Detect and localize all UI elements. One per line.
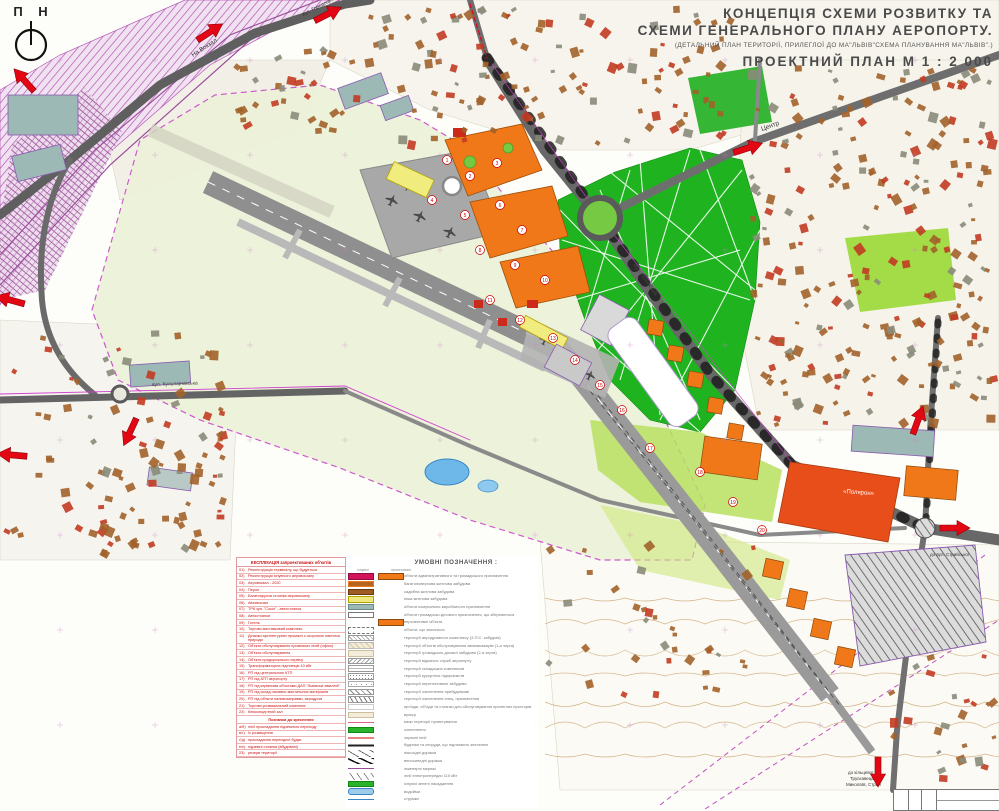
house bbox=[213, 475, 217, 478]
legend-swatch bbox=[348, 635, 374, 642]
house bbox=[512, 84, 518, 89]
house bbox=[178, 463, 187, 471]
legend-swatch bbox=[348, 642, 374, 649]
explication-row: 13)Об'єкти обслуговування bbox=[237, 650, 345, 657]
explication-row: 03)Аеровокзал - 2020 bbox=[237, 580, 345, 587]
legend-swatch bbox=[348, 788, 374, 795]
house bbox=[683, 112, 688, 117]
legend-column-headers: існуючі проектовані bbox=[350, 568, 536, 572]
explication-row-number: 15) bbox=[239, 664, 248, 668]
explication-row: 23)резерв території bbox=[237, 750, 345, 757]
explication-row-text: Автостоянки bbox=[248, 614, 270, 618]
legend-label: об'єкти адміністративного та громадськог… bbox=[404, 574, 508, 578]
explication-row-text: Автовокзал bbox=[248, 601, 268, 605]
explication-row: в/г)їх розміщення bbox=[237, 731, 345, 738]
house bbox=[46, 458, 54, 463]
legend-swatch bbox=[348, 581, 374, 588]
house bbox=[137, 397, 146, 406]
site-number-text: 5 bbox=[464, 213, 467, 219]
map-label: до вул. Стрийської bbox=[930, 551, 970, 557]
legend-swatch bbox=[348, 750, 374, 757]
house bbox=[654, 75, 661, 81]
explication-row: 22)Кіноконцертний зал bbox=[237, 709, 345, 716]
house bbox=[784, 167, 790, 173]
house bbox=[59, 355, 64, 360]
legend-row: струмки bbox=[348, 796, 536, 803]
house bbox=[981, 396, 987, 401]
house bbox=[431, 136, 438, 141]
legend-swatch bbox=[348, 604, 374, 611]
house bbox=[751, 545, 756, 550]
legend-row: об'єкти адміністративного та громадськог… bbox=[348, 573, 536, 580]
house bbox=[437, 112, 443, 118]
legend-row: озеленення bbox=[348, 727, 536, 734]
legend-label: інша житлова забудова bbox=[404, 597, 447, 601]
legend-swatch bbox=[348, 619, 374, 626]
house bbox=[758, 283, 763, 287]
legend-label: перспективні об'єкти bbox=[404, 620, 442, 624]
legend-swatch bbox=[348, 719, 374, 726]
house bbox=[651, 111, 660, 121]
explication-row-text: РП під склад паливно-мастильних матеріал… bbox=[248, 690, 328, 694]
house bbox=[709, 101, 715, 108]
house bbox=[483, 61, 489, 67]
legend-panel: УМОВНІ ПОЗНАЧЕННЯ : існуючі проектовані … bbox=[346, 556, 538, 808]
site-number-text: 8 bbox=[479, 248, 482, 254]
house bbox=[963, 138, 969, 143]
house bbox=[653, 691, 660, 698]
site-number-text: 17 bbox=[647, 446, 653, 452]
site-number-text: 13 bbox=[550, 336, 556, 342]
title-block: КОНЦЕПЦІЯ СХЕМИ РОЗВИТКУ ТА СХЕМИ ГЕНЕРА… bbox=[603, 5, 993, 70]
legend-row: пішохідні доріжки bbox=[348, 750, 536, 757]
explication-row-number: е/є) bbox=[239, 745, 248, 749]
legend-swatch bbox=[348, 796, 374, 803]
house bbox=[240, 117, 246, 122]
explication-row-number: 13) bbox=[239, 651, 248, 655]
explication-row-number: 01) bbox=[239, 568, 248, 572]
house bbox=[373, 42, 379, 48]
house bbox=[563, 599, 572, 607]
explication-title: ЕКСПЛІКАЦІЯ запроектованих об'єктів bbox=[237, 558, 345, 567]
site-number-text: 6 bbox=[499, 203, 502, 209]
explication-row-text: Трансформаторна підстанція 10 кВт bbox=[248, 664, 312, 668]
house bbox=[200, 355, 204, 359]
legend-swatch bbox=[348, 758, 374, 765]
legend-label: проїзди, об'їзди та стоянки для обслугов… bbox=[404, 705, 531, 709]
legend-label: території аеродромного комплексу (З.П.С.… bbox=[404, 636, 501, 640]
legend-label: інженерні мережі bbox=[404, 767, 436, 771]
house bbox=[217, 473, 222, 478]
explication-row-text: Ділянки архітектурних промзон з охороною… bbox=[248, 634, 343, 642]
explication-row-number: 04) bbox=[239, 588, 248, 592]
legend-label: території об'єктів обслуговування авіапа… bbox=[404, 644, 514, 648]
explication-row-text: Об'єкти обслуговування приземних ліній (… bbox=[248, 644, 333, 648]
legend-label: об'єкти комунально-виробничого призначен… bbox=[404, 605, 490, 609]
house bbox=[957, 172, 964, 178]
legend-row: території аеродромного комплексу (З.П.С.… bbox=[348, 635, 536, 642]
explication-row: ґ/д)прокладання перехідної будки bbox=[237, 737, 345, 744]
legend-swatch bbox=[348, 765, 374, 772]
title-line-1: КОНЦЕПЦІЯ СХЕМИ РОЗВИТКУ ТА bbox=[603, 5, 993, 22]
legend-label: велосипедні доріжки bbox=[404, 759, 442, 763]
legend-row: вулиці bbox=[348, 712, 536, 719]
explication-row-text: Об'єкти обслуговування bbox=[248, 651, 290, 655]
legend-row: перспективні об'єкти bbox=[348, 619, 536, 626]
explication-row: е/є)підземні стоянки (вбудовані) bbox=[237, 744, 345, 751]
house bbox=[832, 105, 837, 110]
house bbox=[673, 103, 678, 108]
house bbox=[778, 278, 787, 285]
stamp-cell bbox=[894, 790, 909, 810]
legend-row: території громадсько-ділової забудови (2… bbox=[348, 650, 536, 657]
legend-row: об'єкти комунально-виробничого призначен… bbox=[348, 604, 536, 611]
legend-swatch bbox=[348, 650, 374, 657]
explication-row-text: Кіноконцертний зал bbox=[248, 710, 283, 714]
explication-row: 04)Перон bbox=[237, 587, 345, 594]
house bbox=[841, 111, 850, 117]
legend-label: будинки та споруди, що підлягають знесен… bbox=[404, 743, 488, 747]
house bbox=[279, 85, 285, 92]
legend-swatch bbox=[348, 727, 374, 734]
house bbox=[424, 59, 433, 69]
house bbox=[556, 45, 562, 49]
stamp-cell bbox=[937, 790, 999, 810]
legend-row: території перспективної забудови bbox=[348, 681, 536, 688]
legend-row: існуючі зелені насадження bbox=[348, 781, 536, 788]
explication-row-number: 16) bbox=[239, 671, 248, 675]
house bbox=[579, 14, 586, 21]
house bbox=[60, 488, 70, 498]
house bbox=[952, 694, 957, 700]
legend-label: об'єкти громадсько-ділового призначення,… bbox=[404, 613, 514, 617]
house bbox=[35, 412, 41, 416]
house bbox=[982, 327, 989, 334]
house bbox=[798, 242, 803, 246]
house bbox=[795, 266, 804, 275]
site-number-text: 18 bbox=[697, 470, 703, 476]
site-number-text: 10 bbox=[542, 278, 548, 284]
house bbox=[832, 150, 838, 156]
house bbox=[972, 333, 978, 340]
legend-label: території складських комплексів bbox=[404, 667, 464, 671]
explication-row-number: 08) bbox=[239, 614, 248, 618]
house bbox=[903, 717, 913, 725]
legend-swatch bbox=[348, 596, 374, 603]
legend-title: УМОВНІ ПОЗНАЧЕННЯ : bbox=[376, 559, 536, 566]
explication-rows: 01)Реконструкція терміналу, що будується… bbox=[237, 567, 345, 757]
legend-row: території відомчих служб аеропорту bbox=[348, 658, 536, 665]
house bbox=[742, 664, 747, 668]
house bbox=[642, 78, 647, 84]
legend-row: інша житлова забудова bbox=[348, 596, 536, 603]
explication-row: 01)Реконструкція терміналу, що будується bbox=[237, 567, 345, 574]
house bbox=[748, 69, 758, 80]
legend-swatch bbox=[348, 573, 374, 580]
legend-row: території озеленення спец. призначення bbox=[348, 696, 536, 703]
legend-row: багатоповерхова житлова забудова bbox=[348, 581, 536, 588]
house bbox=[717, 111, 723, 117]
legend-col-existing: існуючі bbox=[350, 568, 376, 572]
house bbox=[703, 685, 708, 690]
explication-row-text: лінії прокладання підземного переходу bbox=[248, 725, 317, 729]
explication-row-number: 07) bbox=[239, 607, 248, 611]
site-number-text: 9 bbox=[514, 263, 517, 269]
house bbox=[966, 162, 972, 169]
explication-row-number: 23) bbox=[239, 751, 248, 755]
explication-row: 18)РП під керівними об'єктами ДАП "Львів… bbox=[237, 683, 345, 690]
explication-row-number: 17) bbox=[239, 677, 248, 681]
explication-row-text: їх розміщення bbox=[248, 731, 273, 735]
explication-row-text: підземні стоянки (вбудовані) bbox=[248, 745, 298, 749]
house bbox=[389, 34, 394, 40]
legend-swatch bbox=[348, 665, 374, 672]
house bbox=[36, 473, 43, 478]
explication-row-text: прокладання перехідної будки bbox=[248, 738, 301, 742]
legend-label: багатоповерхова житлова забудова bbox=[404, 582, 470, 586]
legend-swatch bbox=[348, 627, 374, 634]
site-number-text: 16 bbox=[619, 408, 625, 414]
house bbox=[975, 756, 984, 766]
legend-label: садибна житлова забудова bbox=[404, 590, 454, 594]
house bbox=[939, 775, 948, 782]
masterplan-page: { "title_block": { "line1": "КОНЦЕПЦІЯ С… bbox=[0, 0, 999, 809]
house bbox=[950, 160, 958, 168]
explication-row-number: а/б) bbox=[239, 725, 248, 729]
house bbox=[900, 77, 906, 83]
house bbox=[645, 608, 654, 618]
site-number-text: 15 bbox=[597, 383, 603, 389]
house bbox=[174, 332, 181, 339]
house bbox=[446, 92, 455, 98]
explication-row: 07)ТРК зуп. "Сокіл" - автостоянка bbox=[237, 607, 345, 614]
house bbox=[859, 167, 866, 173]
legend-row: червоні лінії bbox=[348, 735, 536, 742]
house bbox=[398, 135, 407, 144]
explication-row: 14)Об'єкти придорожнього сервісу bbox=[237, 657, 345, 664]
legend-swatch-projected bbox=[378, 619, 404, 626]
explication-subtitle: Позначки до креслення bbox=[237, 716, 345, 724]
house bbox=[98, 505, 104, 509]
legend-swatch bbox=[348, 658, 374, 665]
explication-row: 20)РП під об'єкти паливозаправки, аеродр… bbox=[237, 696, 345, 703]
legend-swatch bbox=[348, 689, 374, 696]
house bbox=[750, 216, 756, 222]
house bbox=[971, 218, 975, 221]
site-number-text: 7 bbox=[521, 228, 524, 234]
explication-row-number: 03) bbox=[239, 581, 248, 585]
explication-row: 19)РП під склад паливно-мастильних матер… bbox=[237, 690, 345, 697]
explication-row: 17)РП під АТП аеропорту bbox=[237, 677, 345, 684]
legend-swatch bbox=[348, 704, 374, 711]
legend-row: території курортних підприємств bbox=[348, 673, 536, 680]
house bbox=[950, 314, 958, 321]
legend-rows: об'єкти адміністративного та громадськог… bbox=[348, 573, 536, 802]
explication-row-number: 12) bbox=[239, 644, 248, 648]
house bbox=[783, 391, 788, 396]
compass-label: П Н bbox=[8, 4, 54, 19]
house bbox=[364, 58, 374, 68]
house bbox=[960, 757, 966, 763]
house bbox=[975, 234, 982, 242]
legend-label: пішохідні доріжки bbox=[404, 751, 436, 755]
house bbox=[967, 340, 973, 347]
house bbox=[666, 658, 671, 664]
explication-row: 08)Автостоянки bbox=[237, 613, 345, 620]
house bbox=[217, 510, 221, 513]
site-number-text: 2 bbox=[469, 174, 472, 180]
house bbox=[823, 421, 829, 425]
house bbox=[936, 238, 941, 243]
explication-row: а/б)лінії прокладання підземного переход… bbox=[237, 724, 345, 731]
legend-swatch bbox=[348, 681, 374, 688]
explication-row-text: Реконструкція терміналу, що будується bbox=[248, 568, 317, 572]
explication-row: 21)Торгово-розважальний комплекс bbox=[237, 703, 345, 710]
house bbox=[545, 19, 553, 27]
legend-label: лінії електропередач 110 кВт bbox=[404, 774, 457, 778]
house bbox=[750, 290, 757, 298]
house bbox=[828, 326, 833, 329]
legend-swatch bbox=[348, 673, 374, 680]
house bbox=[865, 274, 870, 280]
house bbox=[842, 182, 850, 190]
site-number-text: 19 bbox=[730, 500, 736, 506]
site-number-text: 20 bbox=[759, 528, 765, 534]
site-number-text: 3 bbox=[496, 161, 499, 167]
house bbox=[702, 670, 709, 675]
explication-row-text: резерв території bbox=[248, 751, 277, 755]
house bbox=[834, 374, 842, 380]
legend-swatch bbox=[348, 589, 374, 596]
legend-swatch bbox=[348, 712, 374, 719]
explication-row-text: Аеровокзал - 2020 bbox=[248, 581, 281, 585]
house bbox=[281, 98, 287, 104]
explication-row-text: Готель bbox=[248, 621, 260, 625]
site-number-text: 12 bbox=[517, 318, 523, 324]
legend-row: об'єкти громадсько-ділового призначення,… bbox=[348, 612, 536, 619]
explication-row-number: 22) bbox=[239, 710, 248, 714]
house bbox=[672, 646, 678, 652]
explication-row: 15)Трансформаторна підстанція 10 кВт bbox=[237, 663, 345, 670]
house bbox=[969, 291, 975, 297]
explication-row-text: РП під центральною КТП bbox=[248, 671, 292, 675]
drawing-stamp-fragment bbox=[893, 789, 999, 811]
house bbox=[893, 96, 898, 101]
house bbox=[430, 50, 437, 58]
legend-label: території громадсько-ділової забудови (2… bbox=[404, 651, 497, 655]
legend-row: будинки та споруди, що підлягають знесен… bbox=[348, 742, 536, 749]
house bbox=[987, 378, 992, 384]
explication-row-number: 18) bbox=[239, 684, 248, 688]
stamp-cell bbox=[909, 790, 922, 810]
house bbox=[703, 97, 709, 102]
explication-row: 10)Торгово-виставковий комплекс bbox=[237, 626, 345, 633]
map-label: Трускавець, bbox=[850, 776, 875, 781]
explication-row-number: 09) bbox=[239, 621, 248, 625]
house bbox=[476, 43, 484, 49]
legend-label: існуючі зелені насадження bbox=[404, 782, 453, 786]
legend-swatch bbox=[348, 742, 374, 749]
house bbox=[673, 633, 678, 637]
house bbox=[986, 415, 995, 423]
house bbox=[887, 194, 892, 199]
explication-row-text: РП під керівними об'єктами ДАП "Львівськ… bbox=[248, 684, 340, 688]
legend-label: вулиці bbox=[404, 713, 416, 717]
title-line-3: (ДЕТАЛЬНИЙ ПЛАН ТЕРИТОРІЇ, ПРИЛЕГЛОЇ ДО … bbox=[603, 41, 993, 51]
house bbox=[44, 346, 52, 352]
legend-row: території об'єктів обслуговування авіапа… bbox=[348, 642, 536, 649]
explication-row-text: ТРК зуп. "Сокіл" - автостоянка bbox=[248, 607, 301, 611]
legend-label: території відомчих служб аеропорту bbox=[404, 659, 471, 663]
explication-row-text: Торгово-розважальний комплекс bbox=[248, 704, 306, 708]
north-compass: П Н bbox=[8, 4, 54, 68]
legend-label: території озеленення прибудинкові bbox=[404, 690, 469, 694]
house bbox=[435, 59, 442, 65]
compass-icon bbox=[8, 19, 54, 63]
legend-swatch bbox=[348, 781, 374, 788]
legend-label: території озеленення спец. призначення bbox=[404, 697, 479, 701]
legend-row: межі території проектування bbox=[348, 719, 536, 726]
house bbox=[353, 95, 361, 103]
site-number-text: 1 bbox=[446, 158, 449, 164]
legend-swatch-projected bbox=[378, 573, 404, 580]
house bbox=[148, 480, 157, 487]
explication-row-text: РП під АТП аеропорту bbox=[248, 677, 287, 681]
explication-row-number: 10) bbox=[239, 627, 248, 631]
explication-row-number: 20) bbox=[239, 697, 248, 701]
legend-row: інженерні мережі bbox=[348, 765, 536, 772]
legend-label: території курортних підприємств bbox=[404, 674, 464, 678]
house bbox=[538, 20, 546, 28]
house bbox=[900, 151, 907, 158]
house bbox=[579, 49, 583, 53]
legend-label: території перспективної забудови bbox=[404, 682, 467, 686]
title-line-4: ПРОЕКТНИЙ ПЛАН М 1 : 2 000 bbox=[603, 53, 993, 70]
legend-label: водойми bbox=[404, 790, 420, 794]
legend-row: проїзди, об'їзди та стоянки для обслугов… bbox=[348, 704, 536, 711]
house bbox=[913, 158, 920, 164]
explication-row-number: 19) bbox=[239, 690, 248, 694]
explication-row-number: 11) bbox=[239, 634, 248, 642]
explication-row: 06)Автовокзал bbox=[237, 600, 345, 607]
legend-swatch bbox=[348, 735, 374, 742]
explication-row-number: 21) bbox=[239, 704, 248, 708]
legend-row: території озеленення прибудинкові bbox=[348, 689, 536, 696]
explication-row: 16)РП під центральною КТП bbox=[237, 670, 345, 677]
house bbox=[217, 515, 225, 520]
explication-row-number: в/г) bbox=[239, 731, 248, 735]
explication-panel: ЕКСПЛІКАЦІЯ запроектованих об'єктів 01)Р… bbox=[236, 557, 346, 758]
legend-row: садибна житлова забудова bbox=[348, 589, 536, 596]
explication-row-number: 14) bbox=[239, 658, 248, 662]
house bbox=[653, 615, 657, 619]
legend-col-projected: проектовані bbox=[388, 568, 414, 572]
explication-row-text: Перон bbox=[248, 588, 259, 592]
explication-row-text: Торгово-виставковий комплекс bbox=[248, 627, 302, 631]
house bbox=[981, 165, 989, 173]
legend-label: червоні лінії bbox=[404, 736, 426, 740]
legend-row: водойми bbox=[348, 788, 536, 795]
explication-row: 02)Реконструкція існуючого аеровокзалу bbox=[237, 574, 345, 581]
house bbox=[847, 105, 853, 112]
explication-row: 09)Готель bbox=[237, 620, 345, 627]
site-number-text: 4 bbox=[431, 198, 434, 204]
explication-row-text: Багатоярусна стоянка аеровокзалу bbox=[248, 594, 310, 598]
house bbox=[587, 570, 593, 575]
legend-swatch bbox=[348, 773, 374, 780]
title-line-2: СХЕМИ ГЕНЕРАЛЬНОГО ПЛАНУ АЕРОПОРТУ. bbox=[603, 22, 993, 39]
legend-label: межі території проектування bbox=[404, 720, 457, 724]
